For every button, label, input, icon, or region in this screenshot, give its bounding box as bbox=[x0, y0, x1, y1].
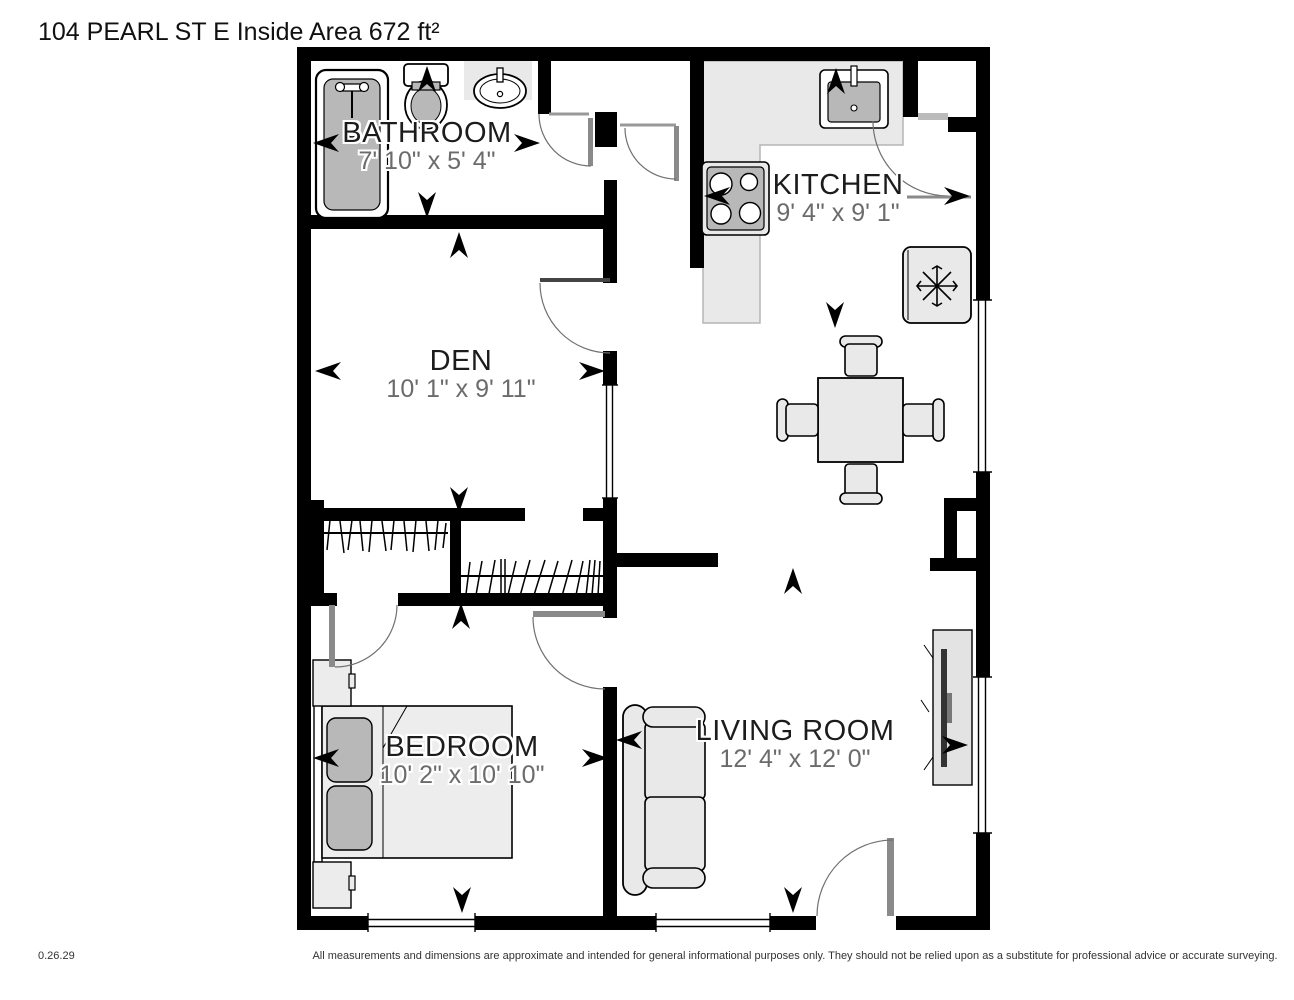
wall-bathroom-right-stub bbox=[538, 60, 551, 114]
hall-closet-door bbox=[620, 125, 679, 181]
wall-kitchen-left bbox=[690, 47, 704, 268]
arrow-den-left bbox=[315, 362, 341, 380]
room-label-living-room: LIVING ROOM 12' 4" x 12' 0" bbox=[696, 716, 895, 772]
wall-hall-stub bbox=[595, 112, 617, 147]
arrow-living-down bbox=[784, 887, 802, 913]
wall-exterior-top bbox=[297, 47, 990, 61]
dining-chair-top bbox=[840, 336, 882, 376]
wall-closet-divider bbox=[450, 519, 461, 597]
arrow-living-up bbox=[784, 568, 802, 594]
wall-entry-nook-left bbox=[903, 61, 918, 117]
dining-chair-bottom bbox=[840, 464, 882, 504]
room-dims: 10' 2" x 10' 10" bbox=[380, 762, 545, 788]
dining-table-icon bbox=[777, 336, 944, 504]
window-right-living bbox=[973, 677, 992, 833]
fridge-icon bbox=[903, 247, 971, 323]
room-dims: 9' 4" x 9' 1" bbox=[773, 200, 904, 226]
wall-entry-nook-stub bbox=[948, 117, 977, 132]
arrow-kitchen-down bbox=[826, 302, 844, 328]
kitchen-sink-icon bbox=[820, 66, 888, 128]
wall-notch-bottom bbox=[930, 558, 990, 571]
room-dims: 7' 10" x 5' 4" bbox=[342, 148, 511, 174]
arrow-bathroom-down bbox=[418, 192, 436, 218]
wall-exterior-left bbox=[297, 47, 311, 930]
wall-den-right-mid bbox=[603, 351, 617, 387]
closet-left-hangers bbox=[313, 520, 448, 553]
footer-disclaimer: All measurements and dimensions are appr… bbox=[300, 950, 1290, 962]
closet-right-hangers bbox=[460, 559, 604, 596]
living-room-door bbox=[817, 838, 894, 916]
room-name: DEN bbox=[386, 346, 535, 376]
wall-hall-right bbox=[604, 180, 617, 229]
room-label-bathroom: BATHROOM 7' 10" x 5' 4" bbox=[342, 118, 511, 174]
window-bottom-bedroom bbox=[368, 913, 475, 932]
door-gap-bottom bbox=[816, 914, 896, 932]
wall-bedroom-living bbox=[603, 687, 617, 916]
arrow-bedroom-up bbox=[452, 603, 470, 629]
room-name: BEDROOM bbox=[380, 732, 545, 762]
bedroom-door bbox=[533, 611, 605, 689]
room-dims: 12' 4" x 12' 0" bbox=[696, 746, 895, 772]
room-label-kitchen: KITCHEN 9' 4" x 9' 1" bbox=[773, 170, 904, 226]
window-den-interior bbox=[602, 385, 618, 498]
pillow-icon bbox=[327, 718, 372, 782]
room-name: KITCHEN bbox=[773, 170, 904, 200]
wall-bedroom-top-a bbox=[311, 593, 337, 606]
arrow-bedroom-down bbox=[453, 887, 471, 913]
arrow-bathroom-right bbox=[514, 134, 540, 152]
nightstand-bottom-icon bbox=[313, 862, 355, 908]
tv-console-icon bbox=[921, 630, 972, 785]
room-label-bedroom: BEDROOM 10' 2" x 10' 10" bbox=[380, 732, 545, 788]
window-right-dining bbox=[973, 300, 992, 472]
wall-living-top bbox=[605, 553, 718, 567]
bathroom-door bbox=[539, 114, 593, 166]
snowflake-icon bbox=[917, 266, 957, 306]
room-name: LIVING ROOM bbox=[696, 716, 895, 746]
den-door bbox=[540, 280, 610, 353]
wall-closet-top-left bbox=[305, 508, 525, 521]
floorplan-drawing bbox=[0, 0, 1294, 1000]
arrow-den-right bbox=[579, 362, 605, 380]
room-name: BATHROOM bbox=[342, 118, 511, 148]
wall-den-right-upper bbox=[603, 229, 617, 283]
page-title: 104 PEARL ST E Inside Area 672 ft² bbox=[38, 18, 440, 47]
room-dims: 10' 1" x 9' 11" bbox=[386, 376, 535, 402]
arrow-den-up bbox=[450, 232, 468, 258]
dining-chair-right bbox=[903, 399, 944, 441]
wall-closet-top-right bbox=[583, 508, 617, 521]
footer-version: 0.26.29 bbox=[38, 950, 75, 962]
floorplan-page: 104 PEARL ST E Inside Area 672 ft² BATHR… bbox=[0, 0, 1294, 1000]
wall-bedroom-top-b bbox=[398, 593, 607, 606]
bedroom-closet-door bbox=[329, 605, 397, 667]
pillow-icon bbox=[327, 786, 372, 850]
dining-chair-left bbox=[777, 399, 818, 441]
window-bottom-living bbox=[656, 913, 770, 932]
room-label-den: DEN 10' 1" x 9' 11" bbox=[386, 346, 535, 402]
